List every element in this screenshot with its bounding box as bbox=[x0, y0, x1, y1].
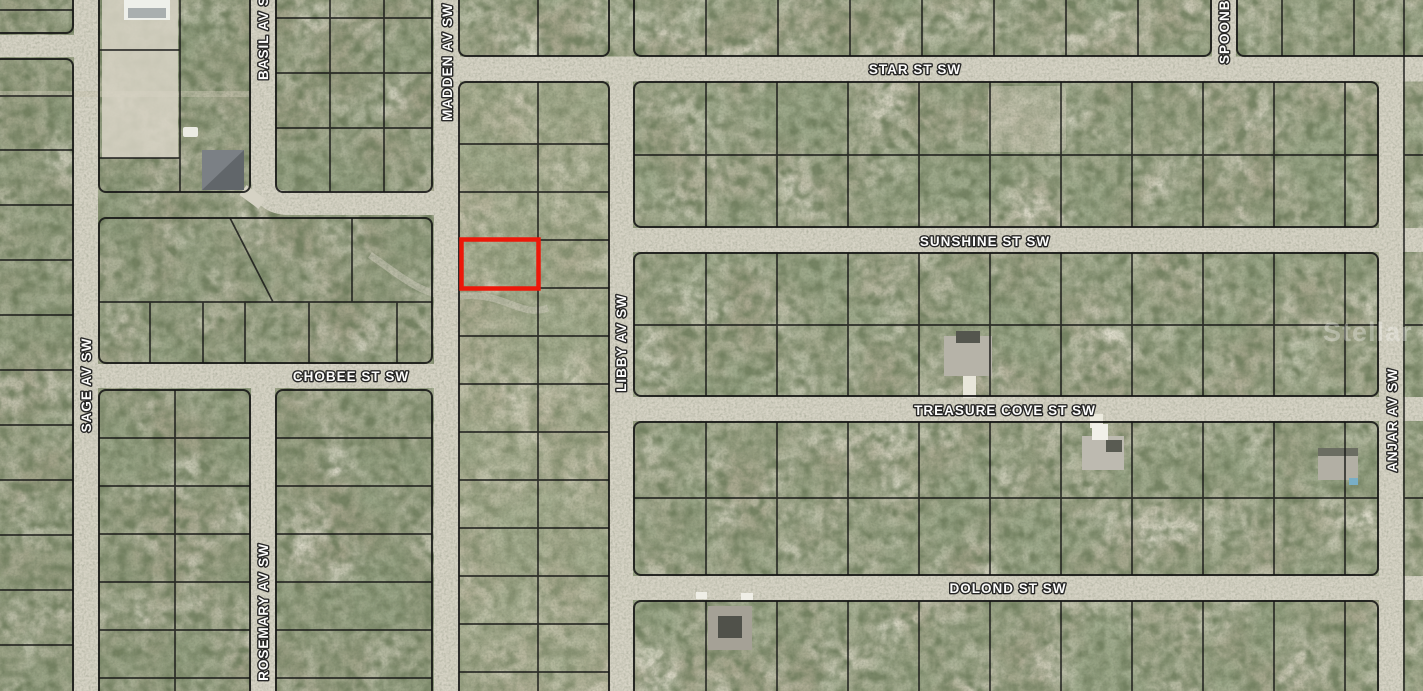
label-rosemary-av: ROSEMARY AV SW bbox=[256, 543, 271, 681]
label-spoonbill-av: SPOONBILL bbox=[1217, 0, 1232, 64]
label-anjar-av: ANJAR AV SW bbox=[1385, 368, 1400, 472]
label-chobee-st: CHOBEE ST SW bbox=[293, 369, 409, 384]
map-canvas: STAR ST SW SUNSHINE ST SW CHOBEE ST SW T… bbox=[0, 0, 1423, 691]
label-treasure-cove-st: TREASURE COVE ST SW bbox=[914, 403, 1096, 418]
label-sunshine-st: SUNSHINE ST SW bbox=[920, 234, 1050, 249]
building-top-left bbox=[124, 0, 170, 20]
label-madden-av: MADDEN AV SW bbox=[440, 3, 455, 121]
texture-overlay bbox=[0, 0, 1423, 691]
label-libby-av: LIBBY AV SW bbox=[614, 294, 629, 392]
pool bbox=[1349, 478, 1358, 485]
vehicle bbox=[696, 592, 707, 599]
vehicle bbox=[741, 593, 753, 600]
mls-watermark: Stellar MLS bbox=[1323, 317, 1423, 347]
house-treasure-cove-2 bbox=[1318, 448, 1358, 485]
label-sage-av: SAGE AV SW bbox=[79, 338, 94, 433]
label-star-st: STAR ST SW bbox=[869, 62, 961, 77]
cleared-parcel bbox=[102, 0, 178, 158]
label-dolond-st: DOLOND ST SW bbox=[950, 581, 1067, 596]
vehicle bbox=[183, 127, 198, 137]
label-basil-av: BASIL AV SW bbox=[256, 0, 271, 80]
aerial-map[interactable]: STAR ST SW SUNSHINE ST SW CHOBEE ST SW T… bbox=[0, 0, 1423, 691]
